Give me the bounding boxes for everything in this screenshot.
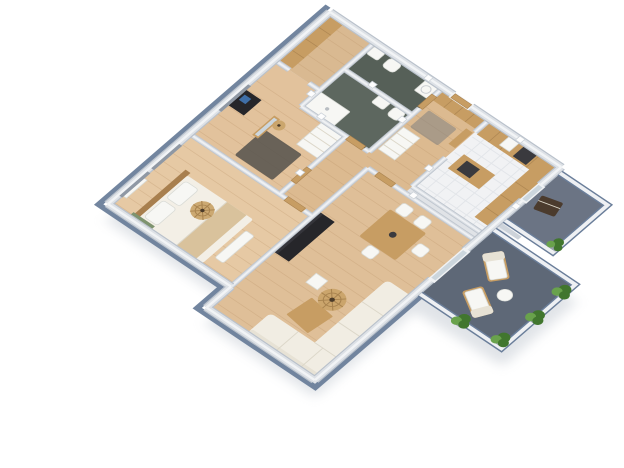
floorplan-render	[0, 0, 624, 468]
floorplan-canvas	[0, 0, 624, 468]
